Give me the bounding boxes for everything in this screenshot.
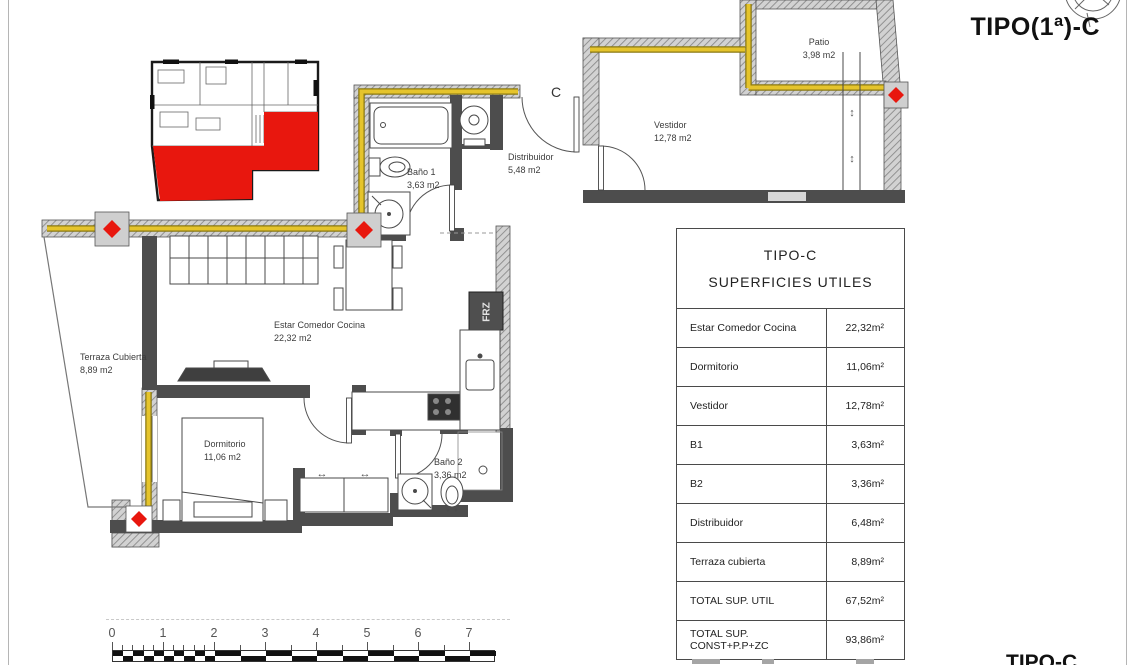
scale-number: 6 [410, 626, 426, 640]
sink [398, 474, 432, 510]
row-label: B2 [677, 465, 826, 503]
overview-plan [150, 60, 318, 202]
bathtub [370, 103, 452, 148]
table-header: TIPO-C SUPERFICIES UTILES [677, 229, 904, 309]
clipped-mark [762, 659, 774, 664]
sheet-title: TIPO(1ª)-C [970, 13, 1100, 42]
room-label-distribuidor: Distribuidor [508, 152, 554, 162]
scale-number: 3 [257, 626, 273, 640]
scale-number: 1 [155, 626, 171, 640]
scale-dashed-line [106, 619, 510, 620]
table-row: TOTAL SUP. CONST+P.P+ZC93,86m² [677, 621, 904, 659]
corner-label: TIPO-C [1006, 651, 1077, 665]
row-label: Vestidor [677, 387, 826, 425]
scale-number: 0 [104, 626, 120, 640]
tv-unit [178, 361, 270, 381]
table-row: Terraza cubierta8,89m² [677, 543, 904, 582]
room-label-bano2: Baño 2 [434, 457, 463, 467]
room-label-dormitorio: Dormitorio [204, 439, 246, 449]
toilet [369, 157, 410, 177]
row-value: 3,36m² [826, 465, 904, 503]
wardrobe [843, 52, 860, 190]
areas-table: TIPO-C SUPERFICIES UTILES Estar Comedor … [676, 228, 905, 660]
row-label: TOTAL SUP. CONST+P.P+ZC [677, 621, 826, 659]
dining-table [334, 240, 402, 310]
row-label: TOTAL SUP. UTIL [677, 582, 826, 620]
scale-number: 2 [206, 626, 222, 640]
room-label-estar: Estar Comedor Cocina [274, 320, 365, 330]
row-value: 6,48m² [826, 504, 904, 542]
row-label: Distribuidor [677, 504, 826, 542]
table-row: Dormitorio11,06m² [677, 348, 904, 387]
slide-arrow-icon: ↔ [360, 468, 371, 480]
scale-checker-bar [112, 650, 495, 662]
row-label: Terraza cubierta [677, 543, 826, 581]
table-row: Distribuidor6,48m² [677, 504, 904, 543]
slide-arrow-icon: ↕ [849, 153, 855, 165]
wall-gap [768, 192, 806, 201]
room-label-patio: Patio [809, 37, 830, 47]
freezer-label: FRZ [482, 302, 493, 321]
section-marker: C [551, 84, 561, 100]
room-area-bano1: 3,63 m2 [407, 180, 440, 190]
scale-number: 5 [359, 626, 375, 640]
sofa [170, 236, 318, 284]
table-row: Estar Comedor Cocina22,32m² [677, 309, 904, 348]
room-area-vestidor: 12,78 m2 [654, 133, 692, 143]
row-value: 22,32m² [826, 309, 904, 347]
drawing-sheet: FRZ [0, 0, 1130, 665]
table-row: B23,36m² [677, 465, 904, 504]
row-label: Dormitorio [677, 348, 826, 386]
table-subtitle: SUPERFICIES UTILES [677, 274, 904, 290]
row-value: 3,63m² [826, 426, 904, 464]
table-row: Vestidor12,78m² [677, 387, 904, 426]
scale-number: 7 [461, 626, 477, 640]
row-label: B1 [677, 426, 826, 464]
bed [163, 418, 287, 522]
kitchen-counter [352, 330, 500, 430]
row-value: 12,78m² [826, 387, 904, 425]
row-value: 93,86m² [826, 621, 904, 659]
closet [300, 478, 388, 512]
slide-arrow-icon: ↔ [317, 468, 328, 480]
room-area-bano2: 3,36 m2 [434, 470, 467, 480]
floor-plan: FRZ [0, 0, 1130, 665]
freezer: FRZ [469, 292, 503, 330]
clipped-mark [856, 659, 874, 664]
slide-arrow-icon: ↕ [849, 107, 855, 119]
clipped-mark [692, 659, 720, 664]
room-label-terraza: Terraza Cubierta [80, 352, 147, 362]
shower [458, 432, 502, 490]
row-label: Estar Comedor Cocina [677, 309, 826, 347]
scale-bar: 01234567 [0, 615, 560, 665]
room-area-patio: 3,98 m2 [803, 50, 836, 60]
row-value: 8,89m² [826, 543, 904, 581]
table-body: Estar Comedor Cocina22,32m²Dormitorio11,… [677, 309, 904, 659]
room-label-bano1: Baño 1 [407, 167, 436, 177]
table-row: B13,63m² [677, 426, 904, 465]
row-value: 67,52m² [826, 582, 904, 620]
washing-machine [460, 106, 488, 146]
room-area-dormitorio: 11,06 m2 [204, 452, 241, 462]
table-row: TOTAL SUP. UTIL67,52m² [677, 582, 904, 621]
scale-number: 4 [308, 626, 324, 640]
room-area-estar: 22,32 m2 [274, 333, 312, 343]
row-value: 11,06m² [826, 348, 904, 386]
room-area-distribuidor: 5,48 m2 [508, 165, 541, 175]
room-label-vestidor: Vestidor [654, 120, 687, 130]
room-area-terraza: 8,89 m2 [80, 365, 113, 375]
table-title: TIPO-C [677, 247, 904, 263]
